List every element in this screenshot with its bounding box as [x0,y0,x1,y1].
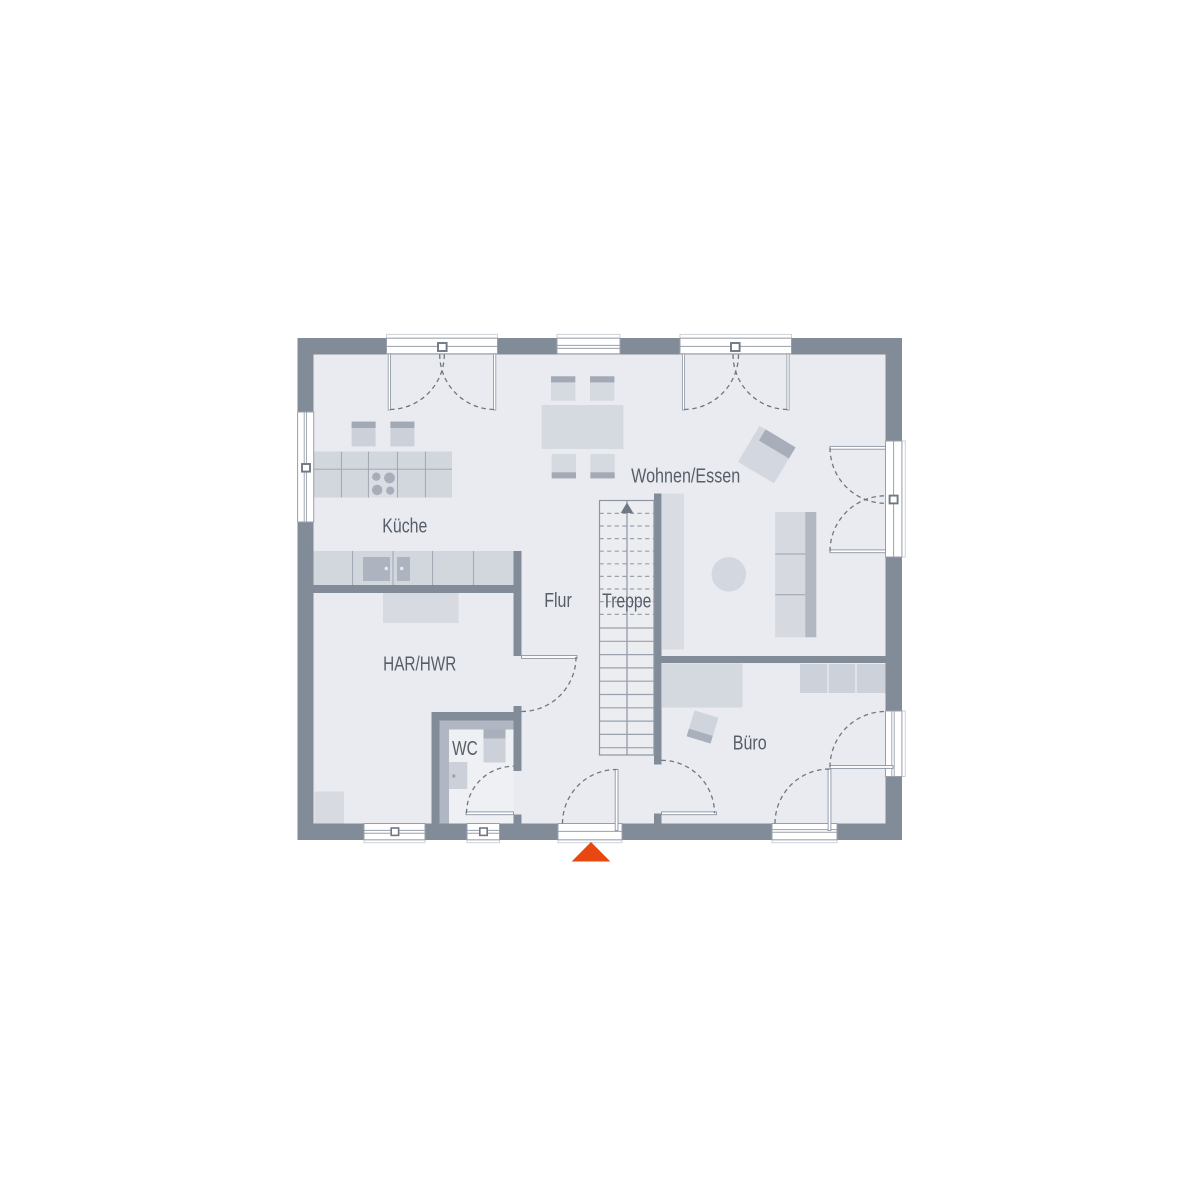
svg-text:Flur: Flur [544,590,572,612]
svg-text:Treppe: Treppe [602,590,651,612]
svg-text:HAR/HWR: HAR/HWR [383,653,456,675]
svg-text:Wohnen/Essen: Wohnen/Essen [631,465,740,487]
svg-text:Küche: Küche [382,515,427,537]
svg-text:WC: WC [452,737,478,759]
svg-text:Büro: Büro [733,732,767,754]
